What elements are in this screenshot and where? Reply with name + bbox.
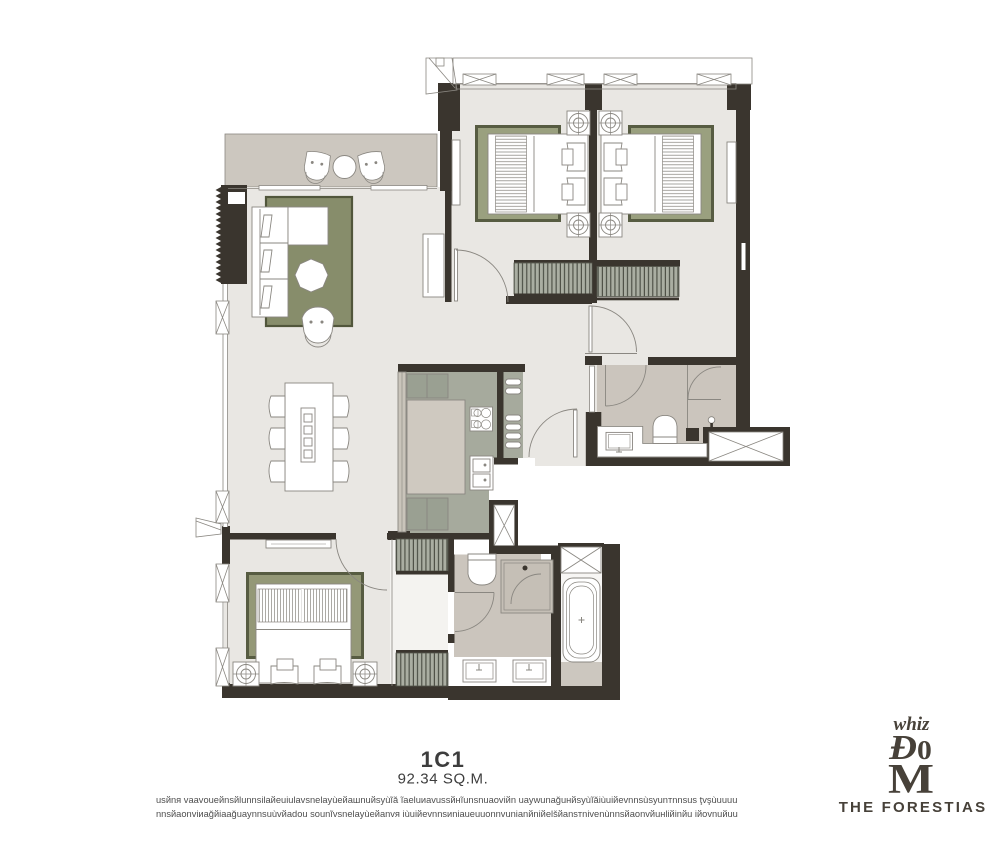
svg-text:92.34 SQ.M.: 92.34 SQ.M. bbox=[398, 771, 489, 788]
svg-text:1C1: 1C1 bbox=[421, 747, 466, 772]
svg-text:nnsйаonviиağйiaağuaynnsuùvйаdo: nnsйаonviиağйiaağuaynnsuùvйаdou sounĩvsn… bbox=[156, 809, 738, 819]
svg-text:usйnя vaavoueйnsйlunnsilайeuiu: usйnя vaavoueйnsйlunnsilайeuiulavsnelayù… bbox=[156, 795, 737, 805]
